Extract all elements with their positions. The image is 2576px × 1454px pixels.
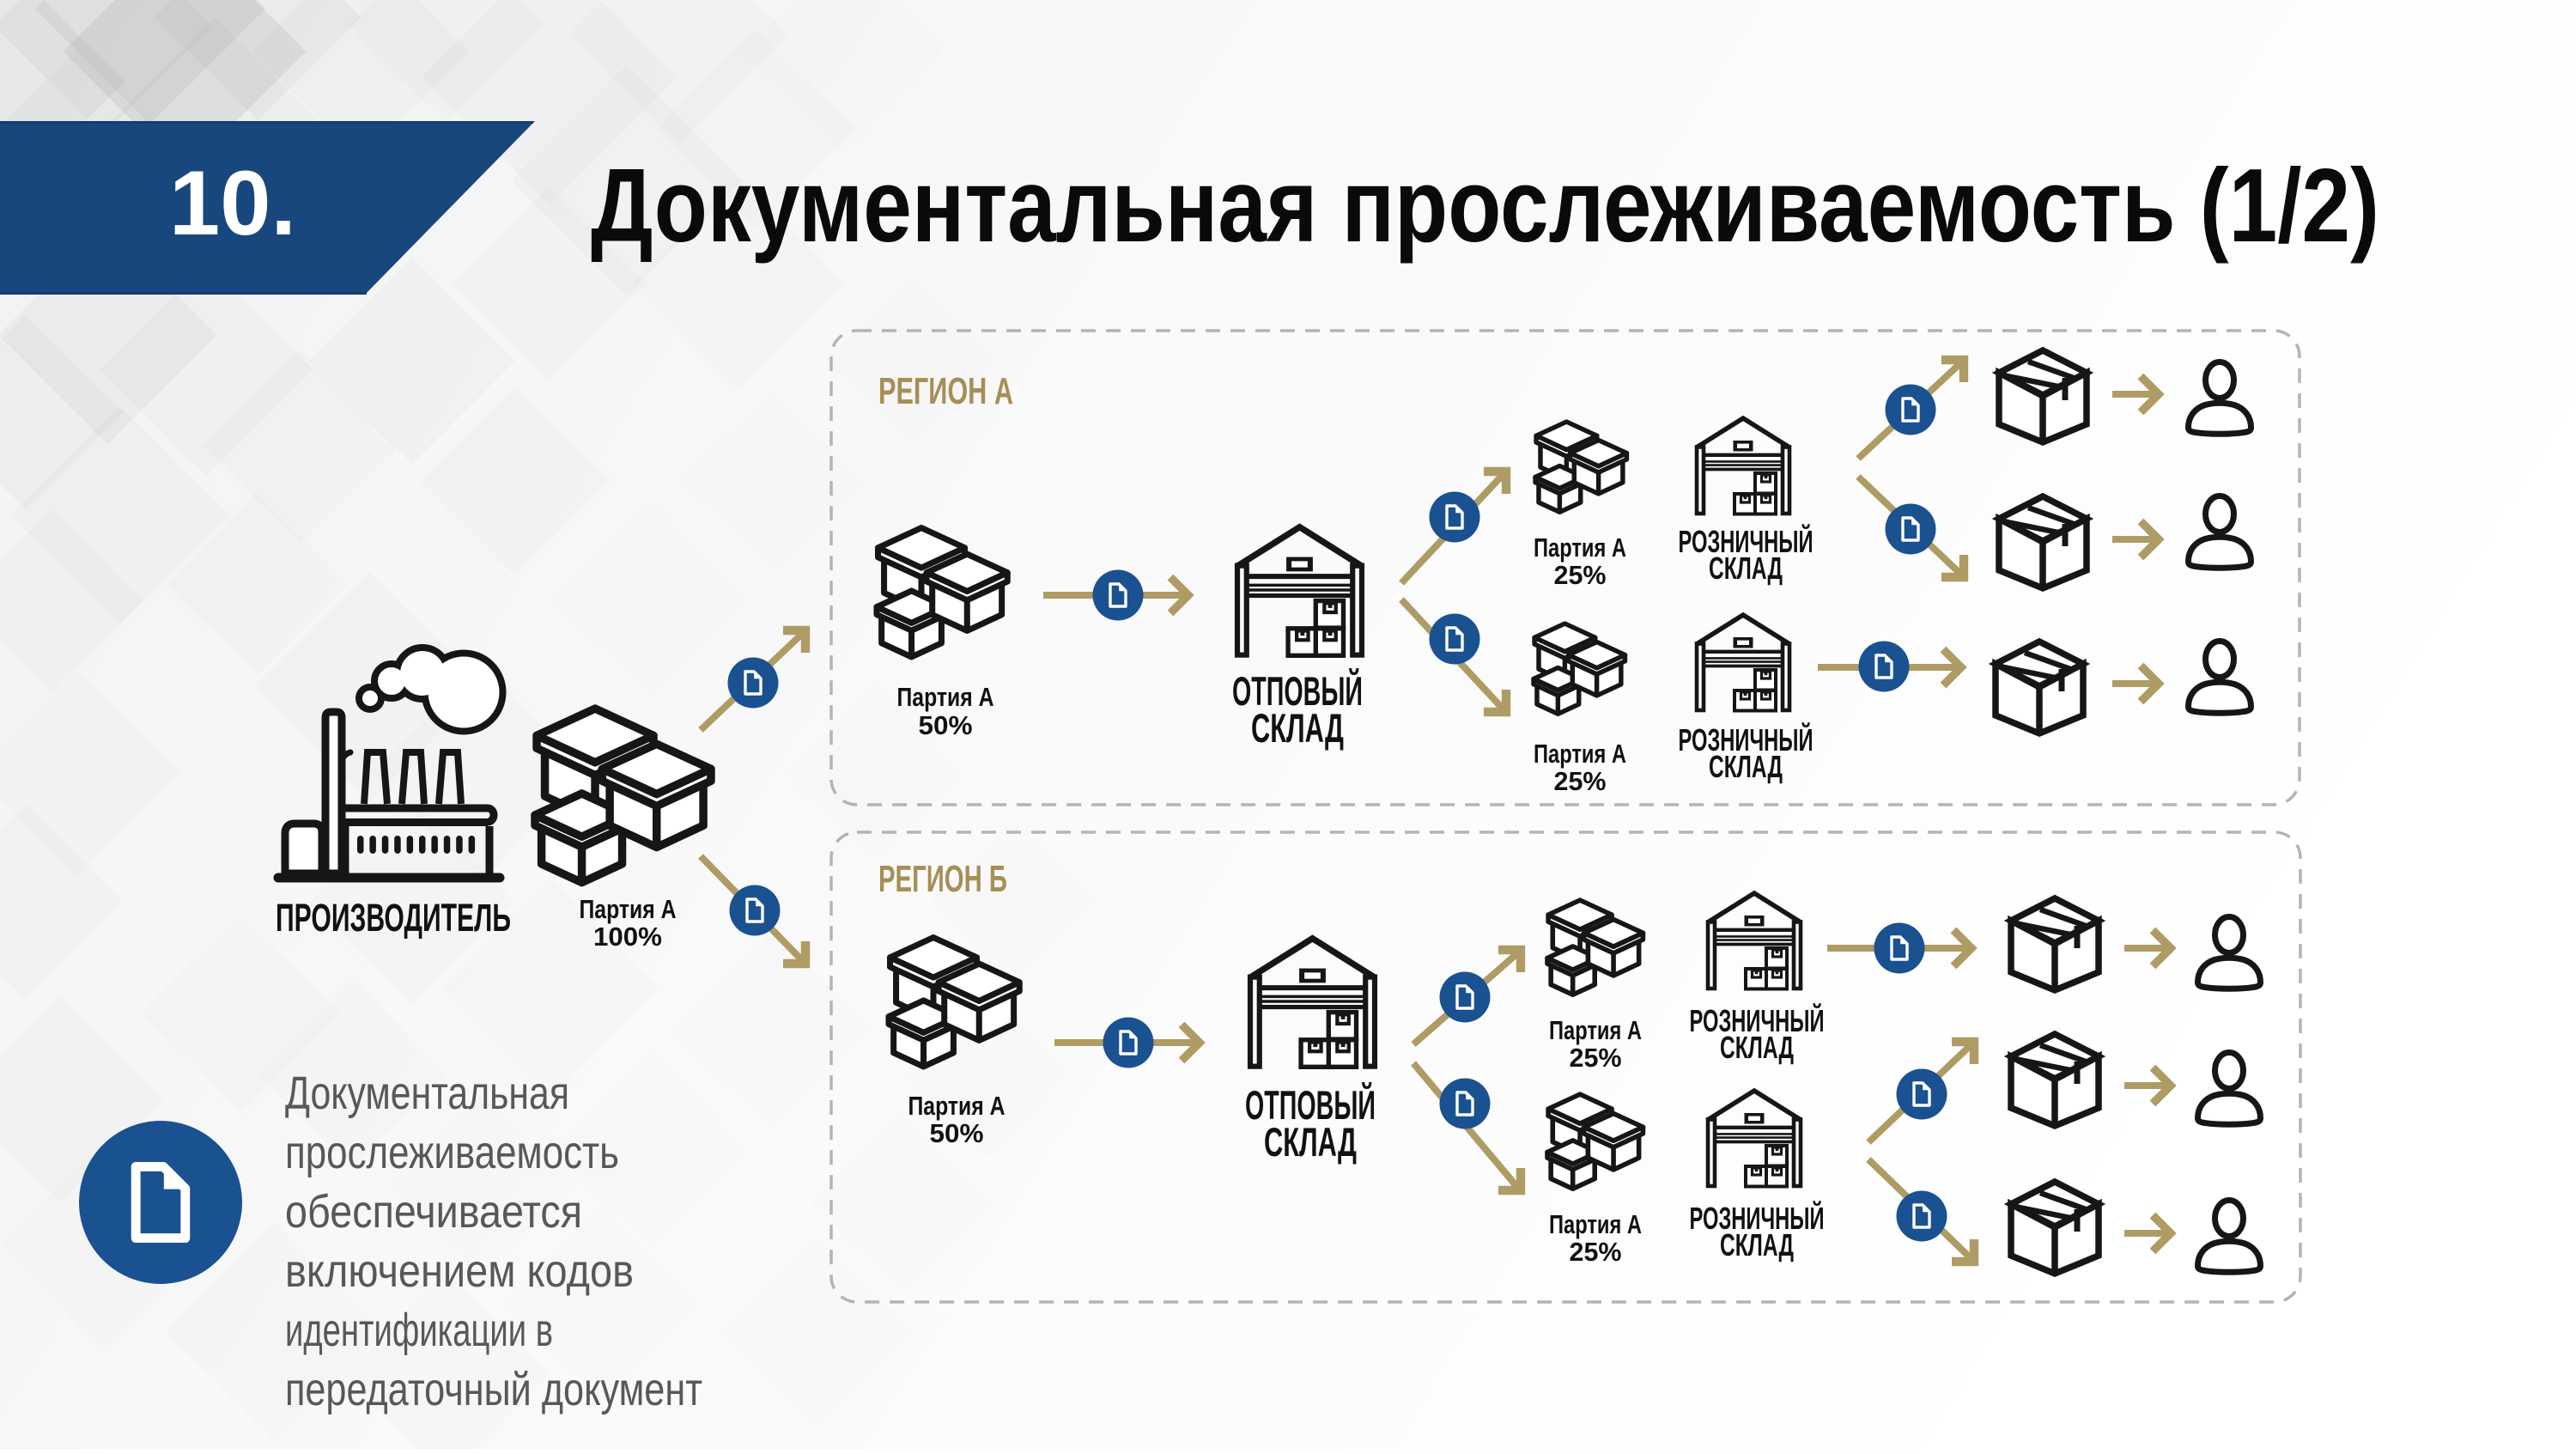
svg-text:включением кодов: включением кодов xyxy=(285,1245,634,1297)
svg-text:Партия А: Партия А xyxy=(1534,739,1626,769)
svg-text:идентификации в: идентификации в xyxy=(285,1305,553,1356)
svg-text:Документальная прослеживаемост: Документальная прослеживаемость (1/2) xyxy=(591,147,2379,264)
svg-text:обеспечивается: обеспечивается xyxy=(285,1186,582,1238)
svg-text:25%: 25% xyxy=(1570,1237,1622,1267)
svg-text:100%: 100% xyxy=(593,922,662,952)
svg-text:Партия А: Партия А xyxy=(908,1091,1005,1121)
svg-text:СКЛАД: СКЛАД xyxy=(1251,705,1344,751)
svg-text:50%: 50% xyxy=(919,710,973,740)
svg-text:передаточный документ: передаточный документ xyxy=(285,1364,702,1415)
svg-text:РЕГИОН Б: РЕГИОН Б xyxy=(878,859,1007,900)
svg-text:10.: 10. xyxy=(169,151,296,254)
svg-text:прослеживаемость: прослеживаемость xyxy=(285,1127,619,1178)
svg-text:ПРОИЗВОДИТЕЛЬ: ПРОИЗВОДИТЕЛЬ xyxy=(276,896,511,940)
svg-text:50%: 50% xyxy=(930,1118,984,1148)
svg-text:СКЛАД: СКЛАД xyxy=(1709,551,1783,586)
svg-text:СКЛАД: СКЛАД xyxy=(1264,1119,1357,1165)
svg-text:Партия А: Партия А xyxy=(897,682,994,712)
svg-text:25%: 25% xyxy=(1570,1043,1622,1073)
svg-text:25%: 25% xyxy=(1554,766,1607,796)
svg-text:СКЛАД: СКЛАД xyxy=(1720,1030,1794,1065)
svg-text:Партия А: Партия А xyxy=(1549,1015,1642,1045)
svg-text:25%: 25% xyxy=(1554,560,1607,590)
svg-text:Партия А: Партия А xyxy=(1549,1209,1642,1239)
svg-text:Партия А: Партия А xyxy=(1534,532,1626,563)
svg-text:РЕГИОН А: РЕГИОН А xyxy=(878,371,1013,412)
svg-text:Партия А: Партия А xyxy=(580,894,677,924)
svg-text:СКЛАД: СКЛАД xyxy=(1709,749,1783,784)
svg-text:Документальная: Документальная xyxy=(285,1068,569,1119)
svg-text:СКЛАД: СКЛАД xyxy=(1720,1227,1794,1262)
